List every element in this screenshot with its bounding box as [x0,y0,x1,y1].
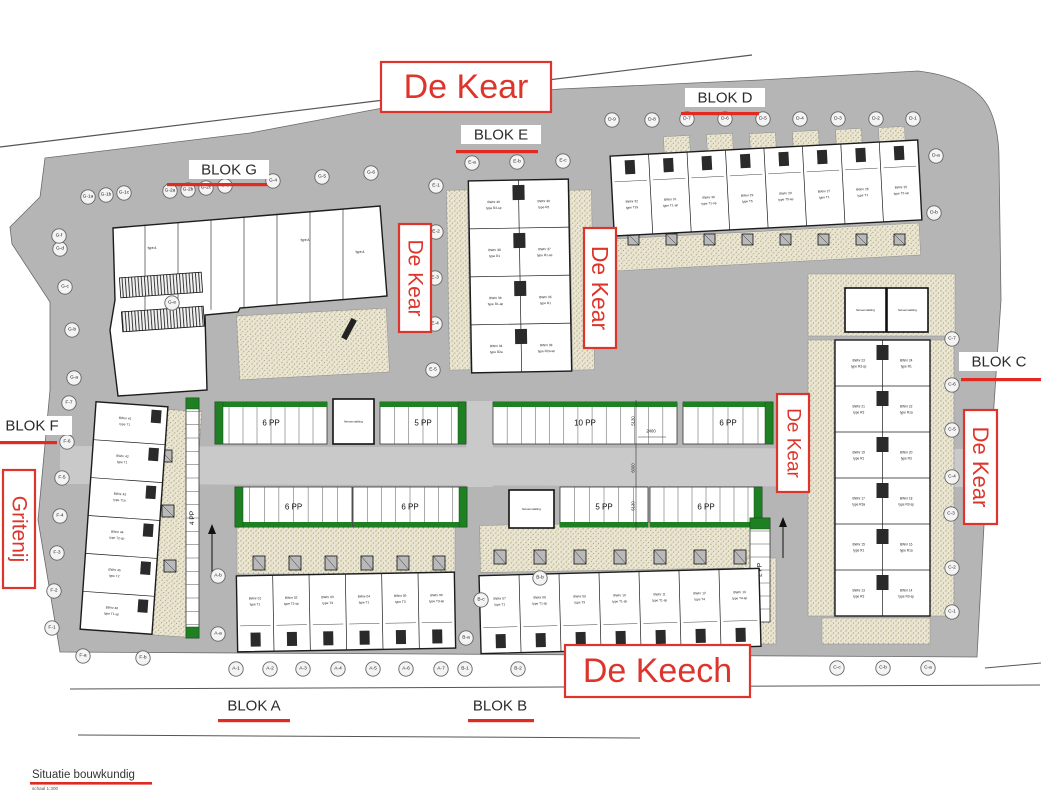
grid-marker-label: C-2 [948,565,956,571]
service-core [514,281,526,296]
unit-bwnr-label: BWnr 03 [321,595,334,599]
grid-marker: F-5 [55,471,69,485]
green-end-block [750,518,770,529]
parking-count-label: 6 PP [285,503,302,512]
unit-bwnr-label: BWnr 11 [653,592,665,596]
unit-bwnr-label: BWnr 28 [779,191,792,196]
service-core [396,630,406,644]
access-road [466,401,493,487]
unit-bwnr-label: BWnr 32 [625,199,638,204]
grid-marker-label: G-4 [269,178,277,184]
unit-bwnr-label: BWnr 10 [613,593,626,597]
unit-type-label: type T3 [322,601,333,605]
grid-marker: E-b [510,155,524,169]
grid-marker: D-2 [869,112,883,126]
unit-bwnr-label: BWnr 25 [895,185,908,190]
blok-label-text: BLOK D [697,90,752,107]
grid-marker-label: E-1 [432,183,440,189]
grid-marker: E-a [465,156,479,170]
grid-marker: E-c [556,154,570,168]
grid-marker-label: F-7 [65,400,73,406]
unit-bwnr-label: BWnr 22 [900,405,913,409]
grid-marker-label: F-b [139,655,147,661]
street-name-text: De Kear [404,239,427,316]
garden-area [446,190,470,370]
green-strip [380,402,466,407]
grid-marker-label: D-a [932,153,940,159]
blok-c-building: BWnr 23type R3-spBWnr 24type R1BWnr 21ty… [835,340,930,616]
unit-type-label: type A [148,246,158,250]
green-strip [235,522,352,527]
service-core [145,485,156,499]
grid-marker-label: E-c [559,158,567,164]
blok-label-underline [681,112,759,115]
unit-bwnr-label: BWnr 13 [853,589,866,593]
service-core [877,529,889,544]
boundary-line-right [985,663,1041,668]
unit-type-label: type T2-sp [894,191,909,196]
service-core [877,391,889,406]
grid-marker-label: E-a [468,160,476,166]
grid-marker: F-b [136,651,150,665]
service-core [151,410,162,424]
grid-marker-label: C-a [924,665,932,671]
grid-marker-label: G-2a [165,188,176,194]
unit-type-label: type R3-sp [899,503,915,507]
green-strip [493,402,677,407]
grid-marker-label: D-9 [608,117,616,123]
unit-type-label: type R1 [489,254,500,258]
grid-marker: G-2c [199,181,213,195]
unit-type-label: type R1-sp [537,253,553,257]
grid-marker: D-3 [831,112,845,126]
unit-type-label: type T2a [626,205,639,210]
grid-marker-label: G-2b [183,187,194,193]
grid-marker-label: G-d [56,246,64,252]
blok-b-building: BWnr 07type T1BWnr 08type T1-spBWnr 09ty… [479,568,761,653]
unit-type-label: type R1a [900,549,913,553]
grid-marker: G-e [165,296,179,310]
grid-marker-label: F-a [79,653,87,659]
unit-bwnr-label: BWnr 38 [488,248,501,252]
unit-bwnr-label: BWnr 36 [489,296,502,300]
parking-segment: 6 PP [650,487,762,527]
unit-bwnr-label: BWnr 34 [490,344,503,348]
grid-marker-label: G-5 [318,174,326,180]
unit-type-label: type T1-sp [532,601,547,605]
grid-marker: F-6 [60,435,74,449]
blok-label: BLOK B [468,698,534,723]
unit-type-label: type R1 [540,301,551,305]
bike-shed: fietsenstalling [845,288,886,332]
unit-type-label: type T1 [857,193,868,198]
unit-type-label: type T4-sp [732,596,747,600]
unit-type-label: type R1 [853,457,864,461]
unit-bwnr-label: BWnr 33 [540,343,553,347]
grid-marker-label: B-c [477,597,485,603]
grid-marker: F-3 [50,546,64,560]
service-core [695,629,705,643]
parking-segment: 5 PP [380,402,466,444]
grid-marker-label: F-4 [56,513,64,519]
street-name-box: De Keech [565,645,750,697]
grid-marker-label: E-5 [429,367,437,373]
unit-bwnr-label: BWnr 08 [533,595,546,599]
unit-type-label: type T1 [819,195,830,200]
blok-label: BLOK A [218,698,290,723]
grid-marker: C-4 [945,470,959,484]
grid-marker: A-1 [229,662,243,676]
grid-marker: C-2 [945,561,959,575]
unit-bwnr-label: BWnr 16 [900,543,913,547]
drawing-scale: schaal 1:300 [32,786,58,791]
grid-marker: F-7 [62,396,76,410]
service-core [251,632,261,646]
bike-shed-label: fietsenstalling [344,420,363,424]
street-name-box: De Kear [381,62,551,112]
grid-marker: B-b [533,571,547,585]
grid-marker-label: D-7 [683,116,691,122]
service-core [656,630,666,644]
grid-marker-label: D-4 [796,116,804,122]
green-strip [353,522,467,527]
unit-type-label: type T1-sp [612,599,627,603]
grid-marker: G-5 [315,170,329,184]
grid-marker: A-b [211,569,225,583]
dimension-text: 5130 [631,416,636,426]
grid-marker: B-2 [511,662,525,676]
grid-marker: B-a [459,631,473,645]
unit-bwnr-label: BWnr 09 [573,594,586,598]
grid-marker: G-c [58,280,72,294]
grid-marker-label: A-7 [437,666,445,672]
dimension-text: 5130 [631,501,636,511]
unit-type-label: type T2-sp [284,602,299,606]
service-core [877,345,889,360]
blok-label-text: BLOK A [227,698,280,715]
street-edge-line [78,735,640,738]
grid-marker-label: D-8 [648,117,656,123]
blok-label-underline [0,441,57,444]
grid-marker: D-9 [605,113,619,127]
unit-type-label: type R2a-sp [538,349,555,353]
unit-type-label: type R1 [901,365,912,369]
parking-count-label: 6 PP [697,503,714,512]
grid-marker-label: G-1c [119,190,130,196]
service-core [625,160,636,175]
unit-bwnr-label: BWnr 14 [900,589,913,593]
unit-type-label: type T1 [119,422,130,427]
service-core [287,632,297,646]
green-strip [683,402,773,407]
grid-marker: E-5 [426,363,440,377]
service-core [143,523,154,537]
grid-marker-label: E-4 [431,321,439,327]
unit-type-label: type A [356,250,366,254]
unit-bwnr-label: BWnr 15 [853,543,866,547]
service-core [663,158,674,173]
garden-area [808,340,834,616]
service-core [323,631,333,645]
title-underline [30,782,152,785]
grid-marker-label: B-a [462,635,470,641]
grid-marker: G-6 [364,166,378,180]
parking-segment-side: 4 PP [186,398,199,638]
unit-type-label: type R3 [853,411,864,415]
parking-segment: 6 PP [235,487,352,527]
grid-marker: D-a [929,149,943,163]
unit-bwnr-label: BWnr 04 [358,594,371,598]
grid-marker: C-7 [945,332,959,346]
grid-marker-label: A-b [214,573,222,579]
grid-marker-label: D-1 [909,116,917,122]
unit-bwnr-label: BWnr 23 [853,359,866,363]
grid-marker: C-a [921,661,935,675]
unit-bwnr-label: BWnr 12 [693,591,706,595]
street-name-text: De Kear [404,68,529,106]
grid-marker: A-7 [434,662,448,676]
unit-type-label: type T1a [113,498,126,503]
grid-marker-label: E-2 [432,229,440,235]
unit-bwnr-label: BWnr 24 [900,359,913,363]
garden-area [237,527,455,574]
street-name-text: Gritenij [8,496,31,563]
grid-marker-label: B-b [536,575,544,581]
street-name-box: De Kear [964,410,997,524]
grid-marker-label: A-5 [369,666,377,672]
grid-marker: A-a [211,627,225,641]
unit-bwnr-label: BWnr 30 [702,195,715,200]
bike-shed-label: fietsenstalling [522,507,541,511]
unit-bwnr-label: BWnr 07 [493,596,506,600]
blok-d-building: BWnr 32type T2aBWnr 31type T1-spBWnr 30t… [610,140,922,236]
unit-bwnr-label: BWnr 19 [853,451,866,455]
grid-marker-label: F-3 [53,550,61,556]
blok-label-text: BLOK C [971,354,1026,371]
street-name-text: De Kear [968,427,993,508]
bike-shed: fietsenstalling [887,288,928,332]
grid-marker: C-5 [945,423,959,437]
unit-type-label: type R3 [853,595,864,599]
service-core [855,148,866,163]
bike-shed: fietsenstalling [333,399,374,444]
service-core [140,561,151,575]
grid-marker: G-a [67,371,81,385]
street-name-box: De Kear [777,394,809,492]
service-core [735,628,745,642]
unit-type-label: type T1 [359,600,370,604]
grid-marker-label: B-2 [514,666,522,672]
blok-label-text: BLOK E [474,127,528,144]
grid-marker: F-2 [47,584,61,598]
service-core [148,448,159,462]
site-plan-canvas: 6 PP5 PP10 PP6 PP6 PP6 PP5 PP6 PP4 PP2 P… [0,0,1041,793]
grid-marker-label: C-3 [947,511,955,517]
street-name-text: De Keech [583,652,732,690]
unit-bwnr-label: BWnr 39 [537,199,550,203]
unit-bwnr-label: BWnr 35 [539,295,552,299]
grid-marker-label: C-b [879,665,887,671]
service-core [137,599,148,613]
unit-type-label: type T5-sp [778,197,793,202]
unit-bwnr-label: BWnr 05 [394,594,407,598]
grid-marker: D-b [927,206,941,220]
grid-marker: E-1 [429,179,443,193]
grid-marker: A-6 [399,662,413,676]
parking-count-label: 5 PP [414,419,431,428]
green-end-block [235,487,243,527]
unit-bwnr-label: BWnr 29 [741,193,754,198]
unit-bwnr-label: BWnr 27 [818,189,831,194]
grid-marker-label: F-1 [48,625,56,631]
service-core [817,150,828,165]
unit-bwnr-label: BWnr 02 [285,596,298,600]
green-end-block [186,398,199,409]
grid-marker-label: C-6 [948,382,956,388]
grid-marker-label: C-7 [948,336,956,342]
service-core [512,185,524,200]
unit-type-label: type T3 [395,600,406,604]
grid-marker: B-c [474,593,488,607]
street-curb-line [70,685,1040,689]
grid-marker-label: F-6 [63,439,71,445]
garden-area [236,308,389,380]
parking-count-label: 6 PP [401,503,418,512]
grid-marker-label: G-1a [83,194,94,200]
plan-svg: 6 PP5 PP10 PP6 PP6 PP6 PP5 PP6 PP4 PP2 P… [0,0,1041,793]
street-name-box: De Kear [399,224,431,332]
unit-bwnr-label: BWnr 06 [430,593,443,597]
green-strip [650,522,762,527]
grid-marker-label: G-f [56,233,63,239]
bike-shed-label: fietsenstalling [898,308,917,312]
grid-marker-label: A-2 [266,666,274,672]
grid-marker: F-a [76,649,90,663]
unit-type-label: type R2 [538,205,549,209]
blok-label-underline [218,719,290,722]
grid-marker: G-b [65,323,79,337]
grid-marker-label: A-4 [334,666,342,672]
grid-marker: C-6 [945,378,959,392]
grid-marker-label: D-3 [834,116,842,122]
service-core [740,154,751,169]
service-core [616,631,626,645]
unit-bwnr-label: BWnr 18 [900,497,913,501]
grid-marker: C-b [876,661,890,675]
grid-marker: C-c [830,661,844,675]
service-core [702,156,713,171]
grid-marker: A-4 [331,662,345,676]
blok-label-underline [167,183,267,186]
grid-marker: G-f [52,229,66,243]
unit-type-label: type T3-sp [429,599,444,603]
parking-count-label: 6 PP [719,419,736,428]
unit-bwnr-label: BWnr 40 [487,200,500,204]
green-end-block [459,487,467,527]
service-core [515,329,527,344]
blok-f-building: BWnr 41type T1BWnr 42type T1BWnr 43type … [80,402,168,634]
unit-type-label: type T4 [694,597,705,601]
service-core [496,634,506,648]
unit-type-label: type A [301,238,311,242]
green-end-block [215,402,223,444]
unit-type-label: type R2a [490,350,503,354]
grid-marker-label: F-2 [50,588,58,594]
unit-bwnr-label: BWnr 31 [664,197,677,202]
bike-shed: fietsenstalling [509,490,554,528]
grid-marker: D-1 [906,112,920,126]
street-name-box: Gritenij [3,470,35,588]
unit-type-label: type R3-sp [851,365,867,369]
blok-label-text: BLOK B [473,698,527,715]
unit-type-label: type T5 [742,199,753,204]
parking-count-label: 10 PP [574,419,596,428]
unit-type-label: type T1-sp [701,201,716,206]
blok-e-building: BWnr 40type R2-spBWnr 39type R2BWnr 38ty… [468,179,571,373]
grid-marker: B-1 [458,662,472,676]
parking-segment: 6 PP [215,402,327,444]
unit-type-label: type R3 [901,457,912,461]
grid-marker-label: C-1 [948,609,956,615]
unit-type-label: type R1 [853,549,864,553]
parking-segment: 6 PP [353,487,467,527]
grid-marker-label: C-4 [948,474,956,480]
green-strip [560,522,648,527]
street-name-text: De Kear [783,408,804,478]
grid-marker-label: F-5 [58,475,66,481]
grid-marker: D-8 [645,113,659,127]
grid-marker: G-d [53,242,67,256]
unit-type-label: type T3 [574,600,585,604]
parking-count-label: 6 PP [262,419,279,428]
unit-type-label: type T1-sp [652,598,667,602]
unit-type-label: type R3-sp [899,595,915,599]
blok-label-text: BLOK F [5,418,58,435]
unit-type-label: type R1-sp [488,302,504,306]
drawing-title: Situatie bouwkundig [32,769,135,781]
grid-marker-label: C-5 [948,427,956,433]
grid-marker-label: A-a [214,631,222,637]
grid-marker: G-1b [99,188,113,202]
grid-marker: C-1 [945,605,959,619]
grid-marker-label: G-a [70,375,78,381]
service-core [877,437,889,452]
service-core [894,146,905,161]
blok-a-building: BWnr 01type T1BWnr 02type T2-spBWnr 03ty… [236,572,455,652]
unit-type-label: type R3a [852,503,865,507]
parking-segment: 6 PP [683,402,773,444]
grid-marker-label: G-b [68,327,76,333]
grid-marker-label: B-1 [461,666,469,672]
grid-marker-label: G-1b [101,192,112,198]
grid-marker: A-2 [263,662,277,676]
parking-count-label: 4 PP [189,511,196,525]
grid-marker-label: G-e [168,300,176,306]
unit-type-label: type T1-sp [663,203,678,208]
grid-marker: F-1 [45,621,59,635]
grid-marker-label: C-c [833,665,841,671]
grid-marker-label: D-6 [721,116,729,122]
grid-marker-label: E-3 [431,275,439,281]
unit-type-label: type T1 [117,460,128,465]
unit-type-label: type R1a [900,411,913,415]
green-end-block [458,402,466,444]
unit-bwnr-label: BWnr 17 [853,497,866,501]
dimension-text: 6000 [631,463,636,473]
grid-marker-label: D-5 [759,116,767,122]
unit-type-label: type R2-sp [486,206,502,210]
grid-marker-label: D-b [930,210,938,216]
